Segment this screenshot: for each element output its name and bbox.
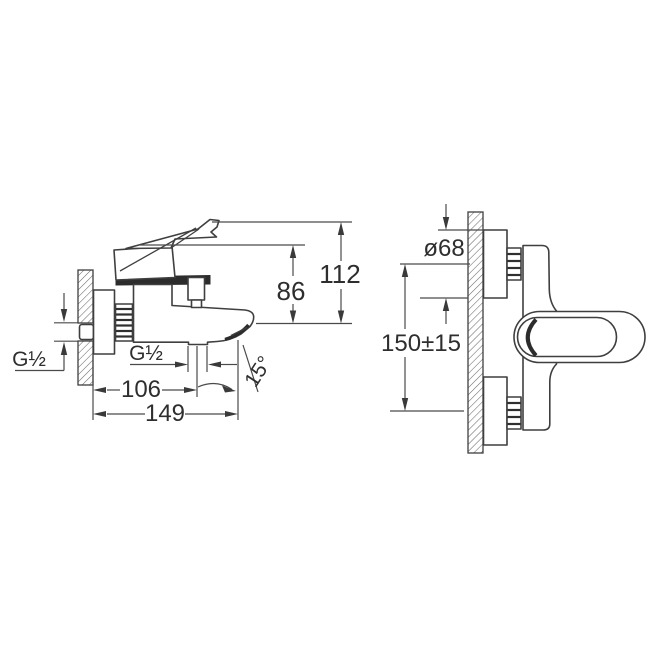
dim-112-label: 112 <box>319 259 360 289</box>
dim-150-label: 150±15 <box>381 330 461 357</box>
dim-149-label: 149 <box>145 400 185 427</box>
dim-112: 112 <box>212 222 361 324</box>
lever-handle-front <box>514 312 645 363</box>
technical-drawing-page: G½ 86 112 G½ <box>0 0 651 651</box>
dim-68-label: ø68 <box>423 235 464 262</box>
wall-section-front <box>468 212 483 453</box>
supply-pipe-stub <box>80 325 94 340</box>
wall-section-side <box>78 270 94 385</box>
dim-15deg-label: 15° <box>240 352 277 391</box>
dim-outlet-thread: G½ <box>129 342 237 372</box>
threaded-nipple-top <box>507 248 521 280</box>
escutcheon-bottom <box>484 377 508 445</box>
dim-86-label: 86 <box>277 276 306 306</box>
faucet-dimension-drawing: G½ 86 112 G½ <box>0 0 651 651</box>
dim-wall-thread: G½ <box>12 293 78 371</box>
side-view: G½ 86 112 G½ <box>12 220 361 428</box>
wall-thread-label: G½ <box>12 348 46 371</box>
escutcheon-top <box>484 230 508 298</box>
front-view: ø68 150±15 <box>381 204 645 453</box>
outlet-thread-label: G½ <box>129 342 163 365</box>
diverter-knob <box>188 278 205 308</box>
escutcheon-side <box>94 290 115 354</box>
threaded-nipple-side <box>116 304 133 341</box>
threaded-nipple-bottom <box>507 397 521 429</box>
lever-handle-side <box>114 220 219 281</box>
dim-150: 150±15 <box>381 264 470 411</box>
dim-106-label: 106 <box>121 376 161 403</box>
